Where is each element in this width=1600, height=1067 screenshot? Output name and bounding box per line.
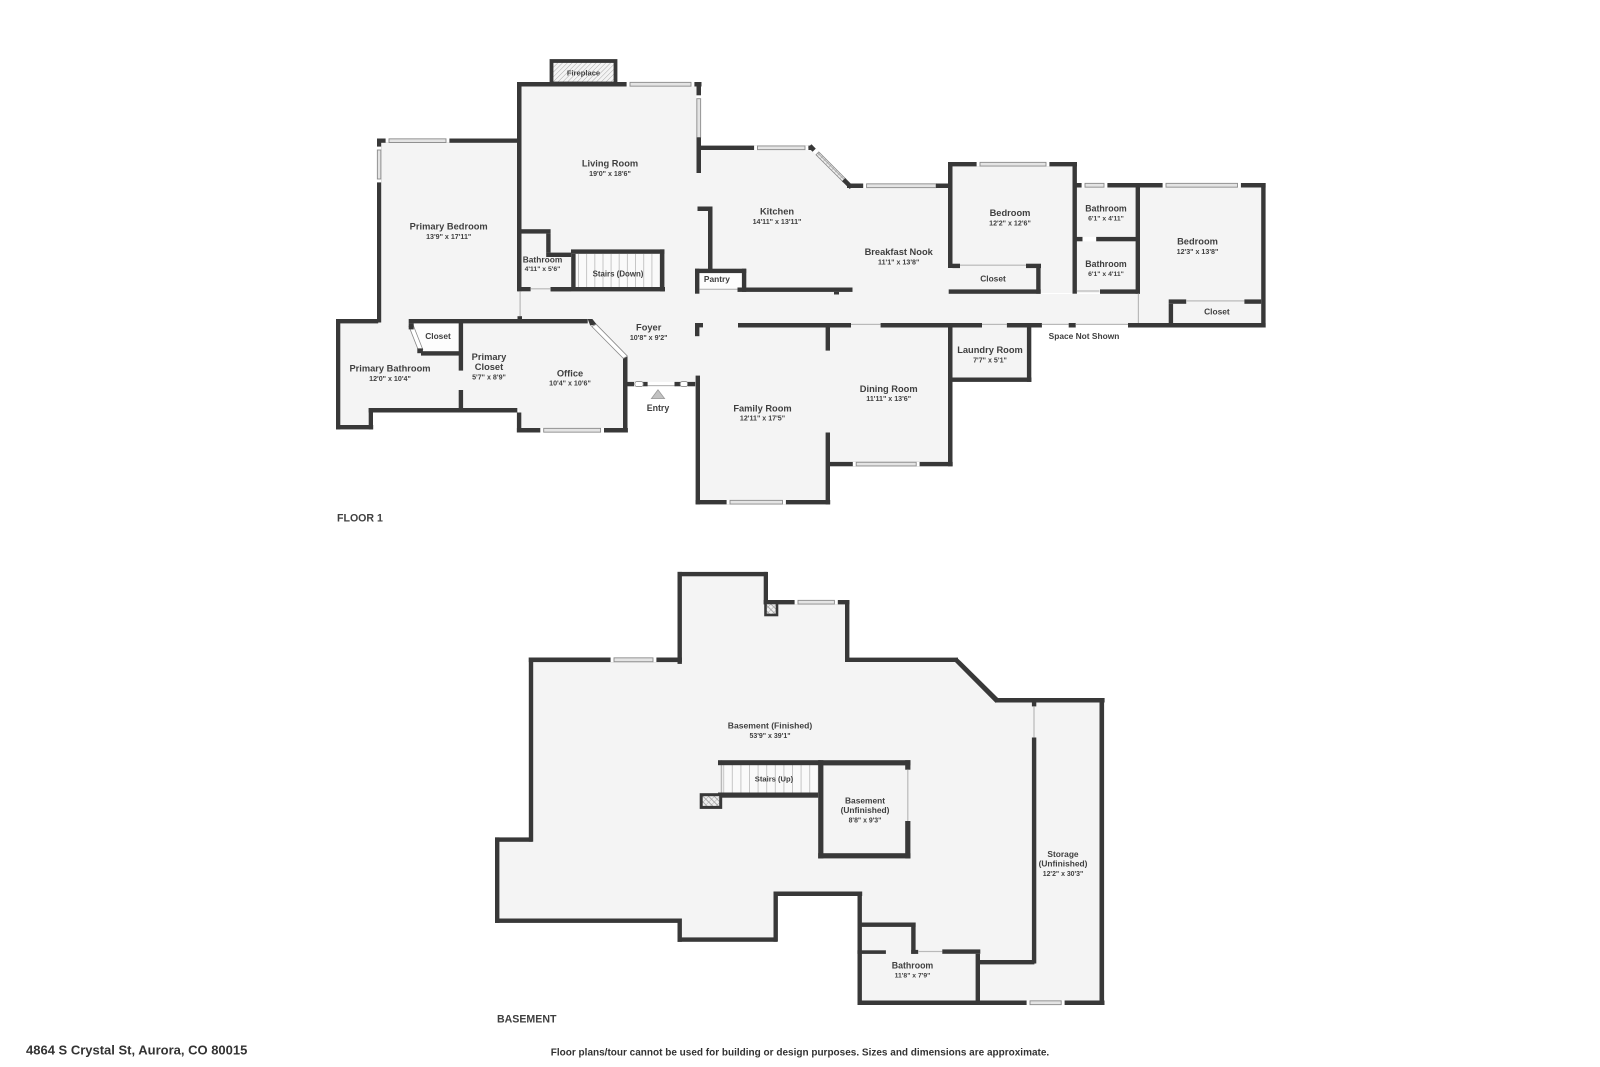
- svg-text:5'7" x 8'9": 5'7" x 8'9": [472, 374, 506, 382]
- svg-text:12'2" x 30'3": 12'2" x 30'3": [1043, 871, 1083, 878]
- svg-text:Dining Room: Dining Room: [860, 384, 918, 394]
- svg-text:Living Room: Living Room: [582, 159, 638, 169]
- svg-text:Bathroom: Bathroom: [523, 255, 563, 265]
- svg-text:53'9" x 39'1": 53'9" x 39'1": [749, 733, 790, 740]
- svg-text:(Unfinished): (Unfinished): [841, 805, 890, 815]
- svg-text:BASEMENT: BASEMENT: [497, 1014, 557, 1026]
- svg-text:Office: Office: [557, 368, 583, 378]
- svg-text:Closet: Closet: [1204, 307, 1230, 317]
- svg-text:12'11" x 17'5": 12'11" x 17'5": [740, 415, 785, 423]
- svg-text:Storage: Storage: [1047, 849, 1079, 859]
- svg-text:4'11" x 5'6": 4'11" x 5'6": [525, 266, 561, 273]
- svg-text:12'3" x 13'8": 12'3" x 13'8": [1177, 248, 1219, 256]
- svg-text:14'11" x 13'11": 14'11" x 13'11": [753, 218, 802, 226]
- svg-text:Floor plans/tour cannot be use: Floor plans/tour cannot be used for buil…: [551, 1048, 1050, 1059]
- svg-text:19'0" x 18'6": 19'0" x 18'6": [589, 170, 631, 178]
- svg-text:Primary Bathroom: Primary Bathroom: [349, 364, 430, 374]
- svg-text:Fireplace: Fireplace: [567, 69, 600, 78]
- svg-text:Bedroom: Bedroom: [990, 208, 1031, 218]
- svg-text:Laundry Room: Laundry Room: [957, 345, 1023, 355]
- svg-text:Stairs (Down): Stairs (Down): [593, 270, 644, 279]
- svg-text:Basement (Finished): Basement (Finished): [728, 721, 813, 731]
- svg-text:Basement: Basement: [845, 795, 885, 805]
- svg-text:Bathroom: Bathroom: [1085, 259, 1127, 269]
- svg-text:Primary: Primary: [472, 352, 507, 362]
- svg-text:11'1" x 13'8": 11'1" x 13'8": [878, 258, 919, 266]
- svg-text:Closet: Closet: [425, 331, 451, 341]
- svg-text:FLOOR 1: FLOOR 1: [337, 513, 383, 525]
- svg-text:12'2" x 12'6": 12'2" x 12'6": [989, 219, 1031, 227]
- svg-text:Pantry: Pantry: [704, 274, 730, 284]
- svg-text:Primary Bedroom: Primary Bedroom: [410, 222, 488, 232]
- svg-text:4864 S Crystal St, Aurora, CO: 4864 S Crystal St, Aurora, CO 80015: [26, 1043, 247, 1058]
- svg-text:Closet: Closet: [475, 362, 503, 372]
- svg-text:11'8" x 7'9": 11'8" x 7'9": [895, 972, 931, 979]
- svg-text:11'11" x 13'6": 11'11" x 13'6": [866, 395, 911, 403]
- svg-text:12'0" x 10'4": 12'0" x 10'4": [369, 375, 411, 383]
- svg-text:Closet: Closet: [980, 274, 1006, 284]
- svg-text:8'8" x 9'3": 8'8" x 9'3": [849, 818, 882, 825]
- svg-text:Stairs (Up): Stairs (Up): [755, 774, 794, 783]
- svg-text:Bedroom: Bedroom: [1177, 237, 1218, 247]
- svg-text:(Unfinished): (Unfinished): [1039, 858, 1088, 868]
- svg-text:Bathroom: Bathroom: [1085, 204, 1127, 214]
- svg-text:Space Not Shown: Space Not Shown: [1049, 331, 1120, 341]
- svg-text:Bathroom: Bathroom: [892, 961, 934, 971]
- svg-text:Kitchen: Kitchen: [760, 207, 794, 217]
- svg-text:10'8" x 9'2": 10'8" x 9'2": [630, 334, 668, 342]
- svg-text:6'1" x 4'11": 6'1" x 4'11": [1088, 271, 1124, 278]
- svg-text:Family Room: Family Room: [733, 403, 791, 413]
- svg-text:Foyer: Foyer: [636, 323, 662, 333]
- svg-text:10'4" x 10'6": 10'4" x 10'6": [549, 380, 591, 388]
- svg-text:6'1" x 4'11": 6'1" x 4'11": [1088, 215, 1124, 222]
- svg-text:13'9" x 17'11": 13'9" x 17'11": [426, 233, 471, 241]
- svg-text:7'7" x 5'1": 7'7" x 5'1": [973, 356, 1007, 364]
- svg-text:Breakfast Nook: Breakfast Nook: [865, 247, 934, 257]
- svg-text:Entry: Entry: [647, 403, 670, 413]
